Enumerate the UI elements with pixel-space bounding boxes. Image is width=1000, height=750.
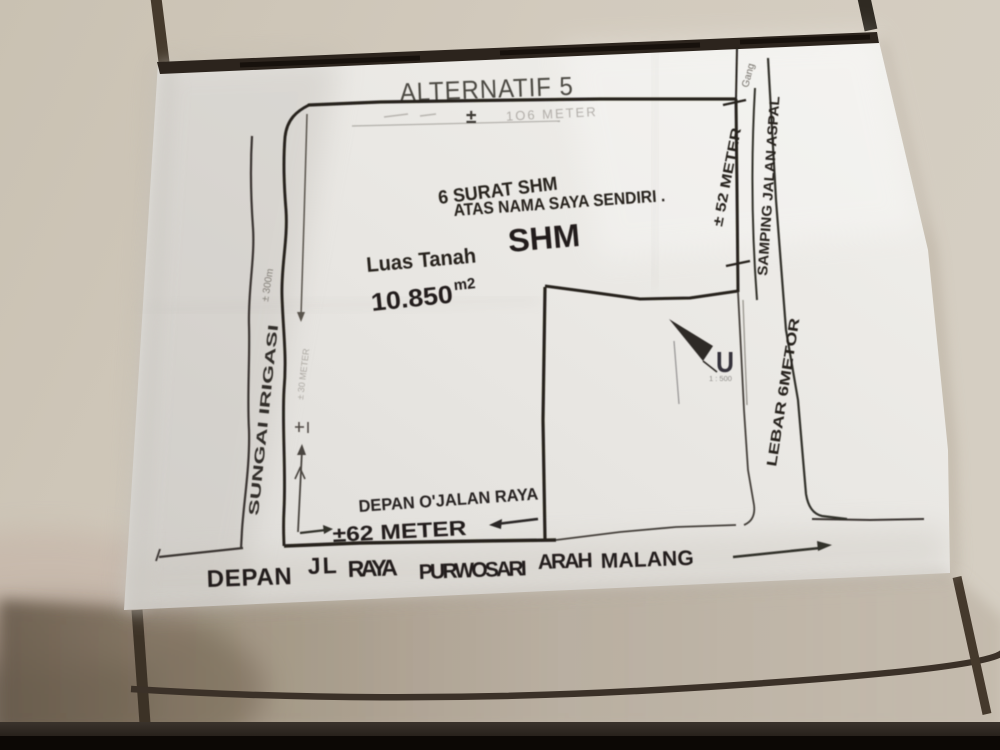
svg-text:JL: JL <box>307 552 337 579</box>
svg-text:PURWOSARI: PURWOSARI <box>418 557 527 584</box>
svg-text:ARAH: ARAH <box>537 549 593 574</box>
svg-text:RAYA: RAYA <box>347 554 398 582</box>
svg-text:SHM: SHM <box>506 217 581 259</box>
svg-text:MALANG: MALANG <box>600 547 694 573</box>
svg-text:±: ± <box>466 107 476 128</box>
svg-text:1 : 500: 1 : 500 <box>709 374 732 383</box>
svg-text:DEPAN: DEPAN <box>206 563 292 593</box>
